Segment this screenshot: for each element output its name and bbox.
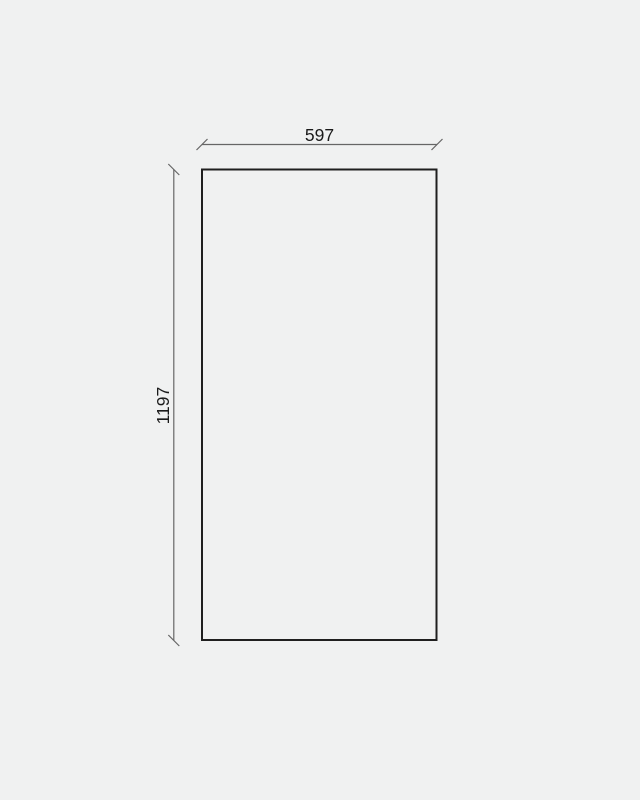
svg-text:597: 597 xyxy=(305,125,334,145)
svg-text:1197: 1197 xyxy=(153,387,173,425)
